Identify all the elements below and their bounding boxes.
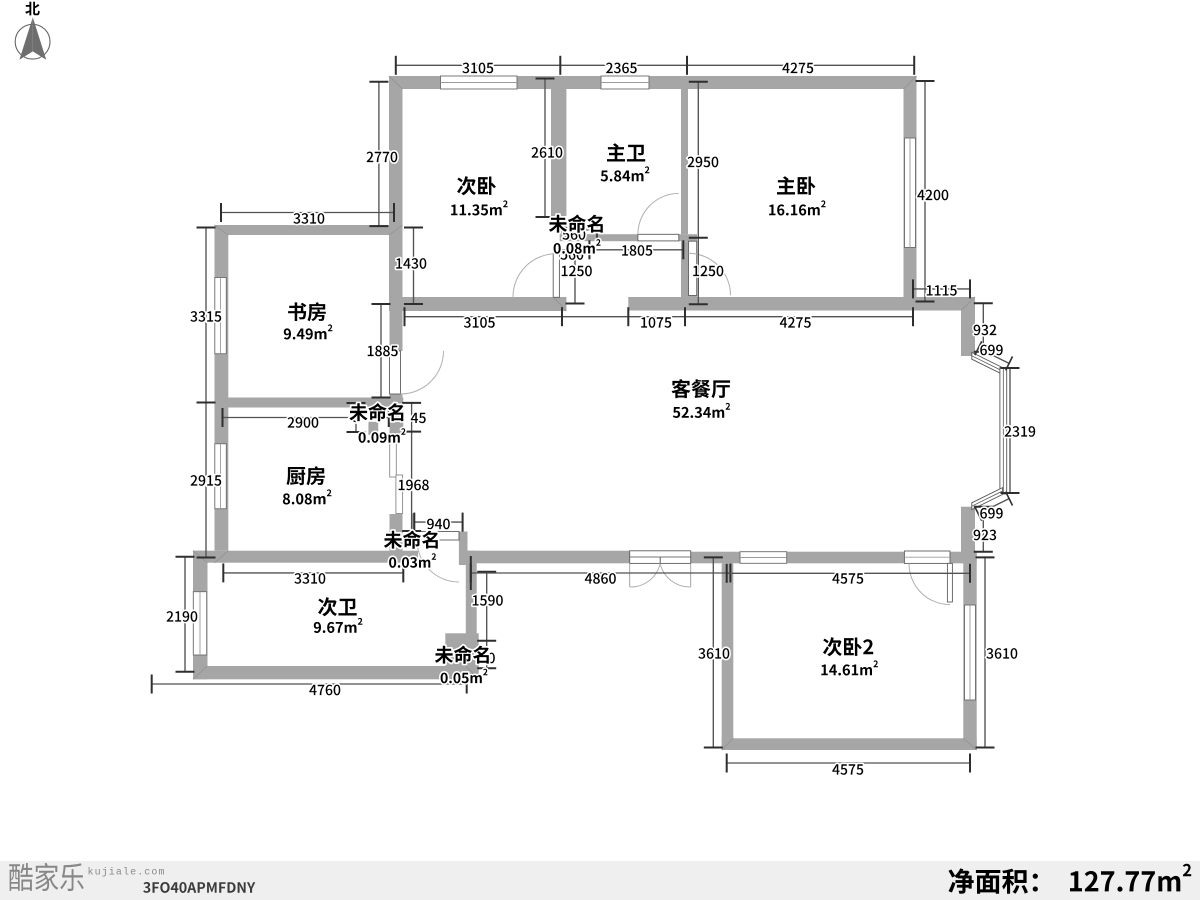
svg-text:kujiale.com: kujiale.com [88,867,166,879]
